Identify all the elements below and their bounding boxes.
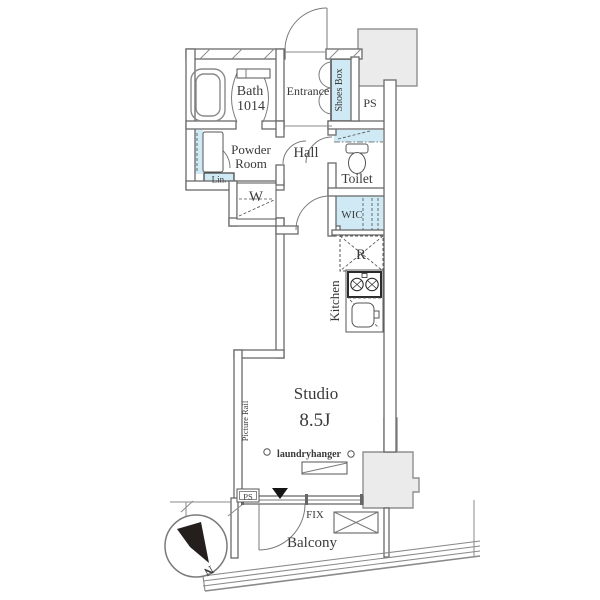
bath-counter-icon bbox=[237, 69, 270, 78]
hall-label: Hall bbox=[294, 145, 319, 161]
hanger-hook-left-icon bbox=[264, 449, 270, 455]
powder-room-label-line1: Powder bbox=[231, 142, 271, 157]
walls bbox=[170, 49, 474, 558]
laundry-hanger-label: laundryhanger bbox=[277, 449, 341, 460]
toilet-label: Toilet bbox=[341, 171, 373, 186]
washer-label: W bbox=[249, 189, 264, 205]
kitchen-label: Kitchen bbox=[327, 280, 342, 322]
bath-label: Bath bbox=[237, 84, 263, 99]
laundry-hanger-icon bbox=[302, 462, 347, 474]
fix-window-label: FIX bbox=[306, 509, 324, 521]
studio-door-arc bbox=[296, 196, 330, 230]
ps-top-label: PS bbox=[363, 96, 376, 110]
toilet-shelf-icon bbox=[334, 130, 383, 142]
floor-plan-svg: Bath 1014 Entrance Shoes Box PS Powder R… bbox=[0, 0, 600, 600]
refrigerator-label: R bbox=[356, 247, 366, 263]
studio-label: Studio bbox=[294, 384, 338, 403]
picture-rail-label: Picture Rail bbox=[240, 400, 250, 441]
balcony-label: Balcony bbox=[287, 535, 337, 551]
pillar-bottom-right bbox=[363, 452, 419, 508]
shoes-box-label: Shoes Box bbox=[334, 68, 345, 111]
entrance-label: Entrance bbox=[287, 84, 330, 98]
ps-bottom-label: PS bbox=[243, 492, 253, 502]
toilet-tank-icon bbox=[346, 144, 368, 153]
hanger-hook-right-icon bbox=[348, 451, 354, 457]
stove-icon bbox=[348, 272, 381, 297]
entrance-door-arc bbox=[285, 8, 327, 50]
powder-room-label-line2: Room bbox=[235, 156, 267, 171]
pillar-top-right bbox=[358, 29, 417, 86]
wic-label: WIC bbox=[341, 209, 362, 221]
bath-size-label: 1014 bbox=[237, 99, 265, 114]
ac-unit-spot-icon bbox=[334, 512, 378, 533]
linen-label: Lin. bbox=[212, 175, 227, 185]
vanity-counter-icon bbox=[203, 132, 223, 172]
compass-icon bbox=[165, 515, 227, 577]
balcony-railing bbox=[203, 541, 480, 591]
floor-plan: Bath 1014 Entrance Shoes Box PS Powder R… bbox=[0, 0, 600, 600]
studio-size-label: 8.5J bbox=[299, 410, 330, 431]
